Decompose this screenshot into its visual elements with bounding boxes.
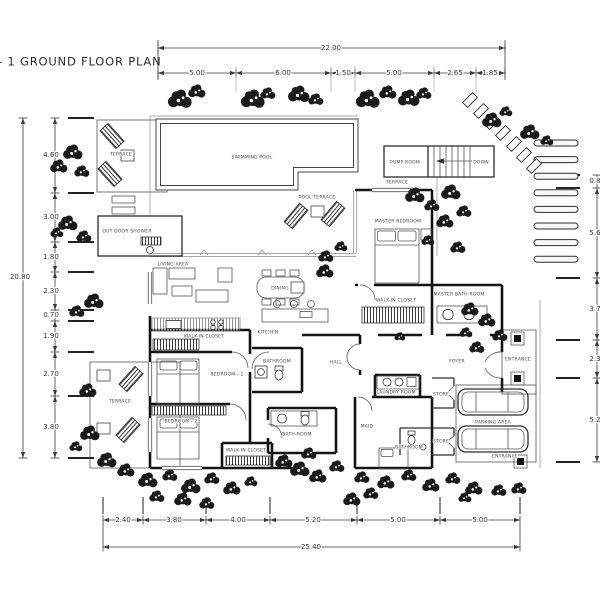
tree-icon — [343, 492, 360, 505]
tree-icon — [478, 313, 495, 326]
label-kitchen: KITCHEN — [258, 330, 279, 336]
tree-icon — [354, 471, 369, 483]
label-swimming-pool: SWIMMING POOL — [232, 155, 273, 161]
dim-bottom-seg: 5.00 — [390, 516, 406, 524]
dimension-lines — [19, 40, 600, 552]
parking — [458, 332, 528, 468]
tree-icon — [117, 463, 134, 476]
dim-left-seg: 0.70 — [43, 311, 59, 319]
dim-bottom-seg: 5.20 — [305, 516, 321, 524]
label-store-2: STORE — [433, 439, 449, 445]
tree-icon — [445, 472, 460, 484]
label-foyer: FOYER — [449, 359, 465, 365]
dim-left-seg: 1.90 — [43, 332, 59, 340]
dim-left-seg: 3.80 — [43, 423, 59, 431]
tree-icon — [149, 490, 164, 502]
tree-icon — [74, 165, 89, 177]
dim-right-seg: 3.7 — [589, 305, 600, 313]
tree-icon — [84, 293, 103, 308]
tree-icon — [377, 475, 394, 488]
dim-left-total: 20.80 — [10, 273, 30, 281]
tree-icon — [199, 497, 214, 509]
tree-icon — [76, 230, 91, 242]
columns — [511, 332, 527, 468]
tree-icon — [63, 144, 82, 159]
tree-icon — [316, 264, 333, 277]
label-terrace-lower: TERRACE — [108, 399, 131, 405]
tree-icon — [401, 469, 416, 481]
tree-icon — [318, 250, 333, 262]
label-bathroom-1: BATHROOM — [263, 359, 291, 365]
tree-icon — [520, 124, 539, 139]
dim-bottom-total: 25.40 — [301, 543, 321, 551]
label-laundry-room: LAUNDRY ROOM — [376, 390, 415, 396]
label-master-bathroom: MASTER BATH-ROOM — [434, 292, 485, 298]
dim-top-seg: 1.85 — [482, 69, 498, 77]
tree-icon — [416, 87, 431, 99]
floor-plan-svg: - 1 GROUND FLOOR PLAN 22.00 5.00 6.00 1.… — [0, 0, 600, 600]
label-master-bedroom: MASTER BEDROOM — [375, 219, 421, 225]
label-bedroom-1: BEDROOM - 1 — [210, 372, 243, 378]
tree-icon — [459, 327, 472, 337]
car-icon — [458, 426, 528, 452]
bed-master — [375, 229, 431, 283]
tree-icon — [356, 90, 380, 108]
tree-icon — [138, 472, 157, 487]
dim-left-seg: 2.70 — [43, 370, 59, 378]
tree-icon — [244, 476, 257, 486]
dim-right-seg: 2.3 — [589, 355, 600, 363]
tree-icon — [499, 106, 512, 116]
tree-icon — [162, 469, 177, 481]
tree-icon — [174, 492, 191, 505]
tree-icon — [79, 383, 96, 396]
label-terrace-upper: TERRACE — [109, 152, 132, 158]
label-pool-terrace: POOL TERRACE — [299, 195, 336, 201]
label-walk-in-closet-master: WALK-IN CLOSET — [376, 298, 416, 304]
label-bath-room-2: BATH-ROOM — [282, 432, 311, 438]
label-store-1: STORE — [433, 392, 449, 398]
tree-icon — [398, 90, 420, 107]
dim-right-seg: 5.2 — [589, 416, 600, 424]
tree-icon — [363, 487, 378, 499]
tree-icon — [422, 478, 439, 491]
tree-icon — [492, 329, 507, 341]
bed-maid — [379, 448, 408, 469]
label-hall: HALL — [330, 360, 343, 366]
label-out-door-shower: OUT DOOR SHOWER — [102, 229, 151, 235]
tree-icon — [97, 452, 116, 467]
car-icon — [458, 389, 528, 415]
label-walk-in-closet-1: WALK-IN CLOSET — [184, 334, 224, 340]
label-bathroom-maid: BATHROOM — [395, 445, 423, 451]
page-title: - 1 GROUND FLOOR PLAN — [0, 55, 162, 69]
label-bedroom-2: BEDROOM - 2 — [164, 419, 197, 425]
tree-icon — [288, 86, 310, 103]
tree-icon — [329, 460, 344, 472]
label-terrace-small: TERRACE — [385, 180, 408, 186]
tree-icon — [461, 302, 478, 315]
tree-icon — [58, 215, 77, 230]
tree-icon — [469, 341, 484, 353]
label-living-area: LIVING AREA — [158, 262, 190, 268]
tree-icon — [450, 241, 465, 253]
tree-icon — [441, 184, 460, 199]
tree-icon — [308, 93, 323, 105]
dim-bottom-seg: 3.80 — [166, 516, 182, 524]
dim-top-seg: 6.00 — [275, 69, 291, 77]
dim-bottom-seg: 4.00 — [230, 516, 246, 524]
label-parking-area: PARKING AREA — [475, 420, 511, 426]
tree-icon — [482, 112, 501, 127]
tree-icon — [540, 135, 553, 145]
tree-icon — [69, 305, 84, 317]
dim-right-seg: 5.6 — [589, 229, 600, 237]
dim-top-seg: 5.00 — [189, 69, 205, 77]
dim-right-seg: 0.8 — [589, 177, 600, 185]
tree-icon — [69, 441, 82, 451]
tree-icon — [241, 90, 265, 108]
furniture — [141, 229, 487, 469]
dim-top-total: 22.00 — [321, 44, 341, 52]
tree-icon — [181, 478, 200, 493]
tree-icon — [290, 461, 309, 476]
label-pump-room: PUMP ROOM — [390, 160, 420, 166]
dim-left-seg: 2.30 — [43, 287, 59, 295]
tree-icon — [260, 87, 275, 99]
tree-icon — [275, 454, 292, 467]
label-entrance: ENTRANCE — [505, 357, 531, 363]
tree-icon — [511, 482, 526, 494]
tree-icon — [379, 85, 396, 98]
label-down: DOWN — [473, 160, 489, 166]
dim-left-seg: 3.00 — [43, 213, 59, 221]
dim-top-seg: 5.00 — [386, 69, 402, 77]
tree-icon — [188, 84, 205, 97]
tree-icon — [436, 214, 453, 227]
tree-icon — [80, 425, 99, 440]
label-walk-in-closet-2: WALK-IN CLOSET — [226, 448, 266, 454]
dim-top-seg: 1.50 — [335, 69, 351, 77]
dim-bottom-seg: 2.40 — [115, 516, 131, 524]
label-dining: DINING — [271, 286, 289, 292]
swimming-pool — [156, 119, 358, 190]
tree-icon — [223, 481, 240, 494]
tree-icon — [309, 469, 326, 482]
dim-bottom-seg: 5.00 — [472, 516, 488, 524]
tree-icon — [168, 90, 192, 108]
bed-1 — [157, 359, 199, 404]
tree-icon — [491, 484, 506, 496]
tree-icon — [301, 447, 316, 459]
tree-icon — [395, 332, 406, 340]
dim-left-seg: 1.80 — [43, 253, 59, 261]
floor-plan-drawing: - 1 GROUND FLOOR PLAN 22.00 5.00 6.00 1.… — [0, 0, 600, 600]
tree-icon — [334, 241, 347, 251]
tree-icon — [50, 159, 67, 172]
dim-left-seg: 4.60 — [43, 151, 59, 159]
label-entrance-2: ENTRANCE — [492, 454, 518, 460]
label-maid: MAID — [361, 424, 374, 430]
tree-icon — [456, 205, 471, 217]
tree-icon — [204, 472, 219, 484]
tree-icon — [465, 481, 482, 494]
dim-top-seg: 2.65 — [447, 69, 463, 77]
